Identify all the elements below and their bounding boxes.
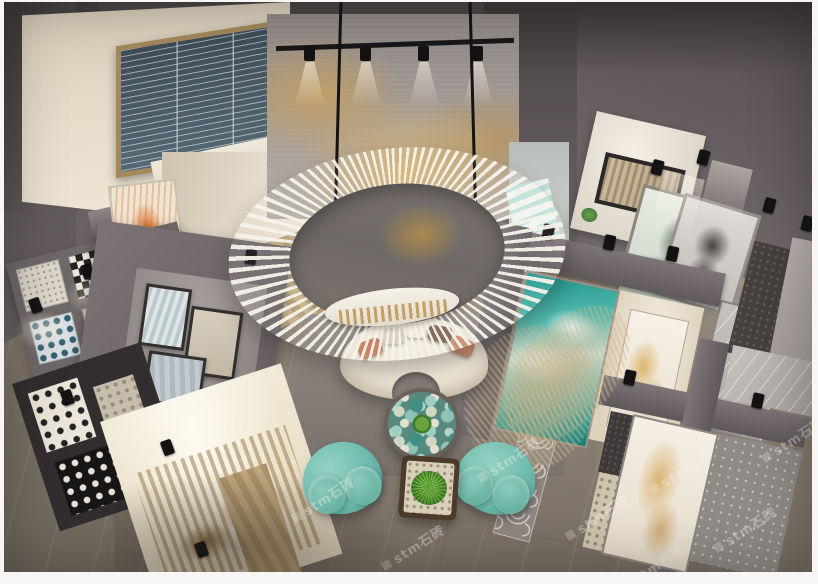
spotlight-icon <box>603 234 617 251</box>
spotlight-icon <box>666 245 680 262</box>
pebble-coffee-table <box>384 388 460 460</box>
tile-sample <box>28 378 97 453</box>
track-spotlight-icon <box>418 46 429 61</box>
ring-swing-sculpture <box>218 131 576 377</box>
track-spotlight-icon <box>472 46 483 61</box>
track-spotlight-icon <box>304 46 315 61</box>
tile-sample <box>16 259 69 312</box>
track-spotlight-icon <box>360 46 371 61</box>
photo-frame: ▦stm石砖 ▦stm石砖 ▦stm石砖 ▦stm石砖 ▦stm石砖 ▦stm石… <box>0 0 818 584</box>
potted-plant <box>580 206 599 223</box>
spotlight-icon <box>751 392 765 409</box>
framed-tile-art <box>138 283 192 351</box>
pebble-table-top <box>388 392 456 456</box>
light-glow <box>14 310 70 350</box>
plant-side-table <box>398 455 460 521</box>
showroom-scene: ▦stm石砖 ▦stm石砖 ▦stm石砖 ▦stm石砖 ▦stm石砖 ▦stm石… <box>4 2 812 572</box>
ceiling-shadow <box>484 2 812 74</box>
